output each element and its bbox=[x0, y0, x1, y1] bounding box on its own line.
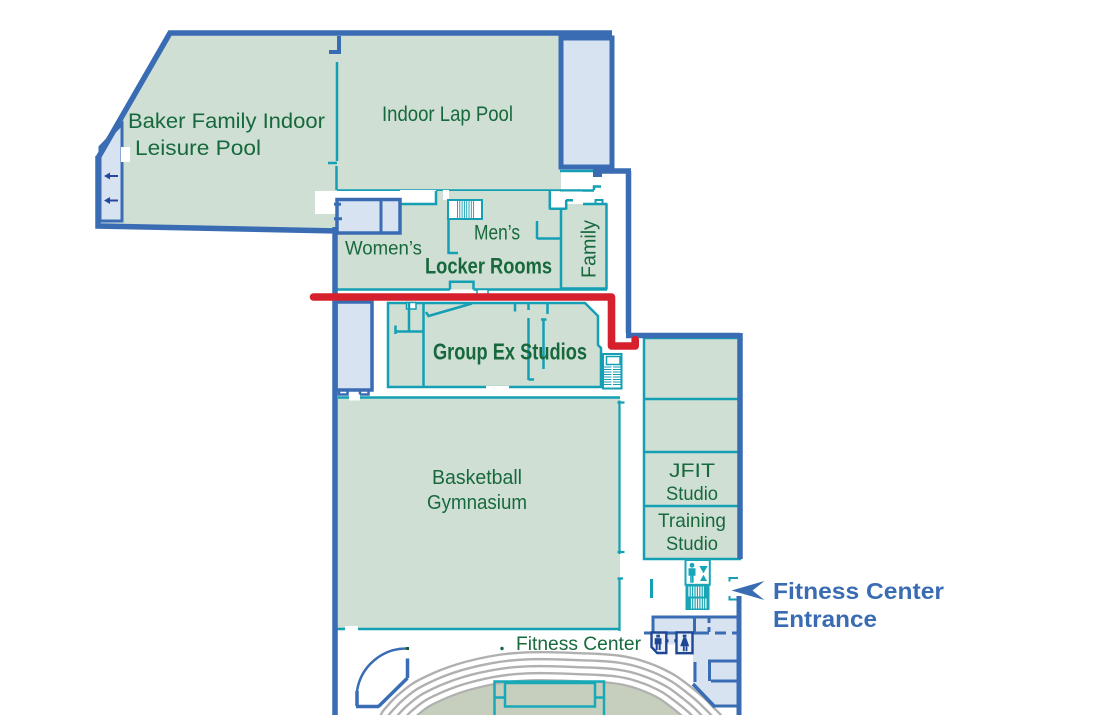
svg-text:Men’s: Men’s bbox=[474, 222, 520, 245]
svg-text:Fitness Center: Fitness Center bbox=[773, 578, 944, 604]
svg-text:Women’s: Women’s bbox=[345, 238, 422, 260]
svg-text:Indoor Lap Pool: Indoor Lap Pool bbox=[382, 103, 513, 126]
svg-text:Baker Family Indoor: Baker Family Indoor bbox=[128, 110, 325, 133]
svg-text:Entrance: Entrance bbox=[773, 606, 877, 632]
svg-text:JFIT: JFIT bbox=[669, 460, 715, 482]
svg-text:Studio: Studio bbox=[666, 483, 718, 505]
svg-text:Training: Training bbox=[658, 510, 726, 532]
svg-text:Group Ex Studios: Group Ex Studios bbox=[433, 339, 587, 365]
svg-text:Basketball: Basketball bbox=[432, 466, 522, 489]
svg-text:Gymnasium: Gymnasium bbox=[427, 491, 527, 514]
svg-text:Leisure Pool: Leisure Pool bbox=[135, 137, 261, 160]
svg-text:Locker Rooms: Locker Rooms bbox=[425, 254, 552, 279]
svg-text:Family: Family bbox=[579, 220, 601, 278]
svg-text:Fitness Center: Fitness Center bbox=[516, 633, 641, 655]
svg-text:Studio: Studio bbox=[666, 533, 718, 555]
